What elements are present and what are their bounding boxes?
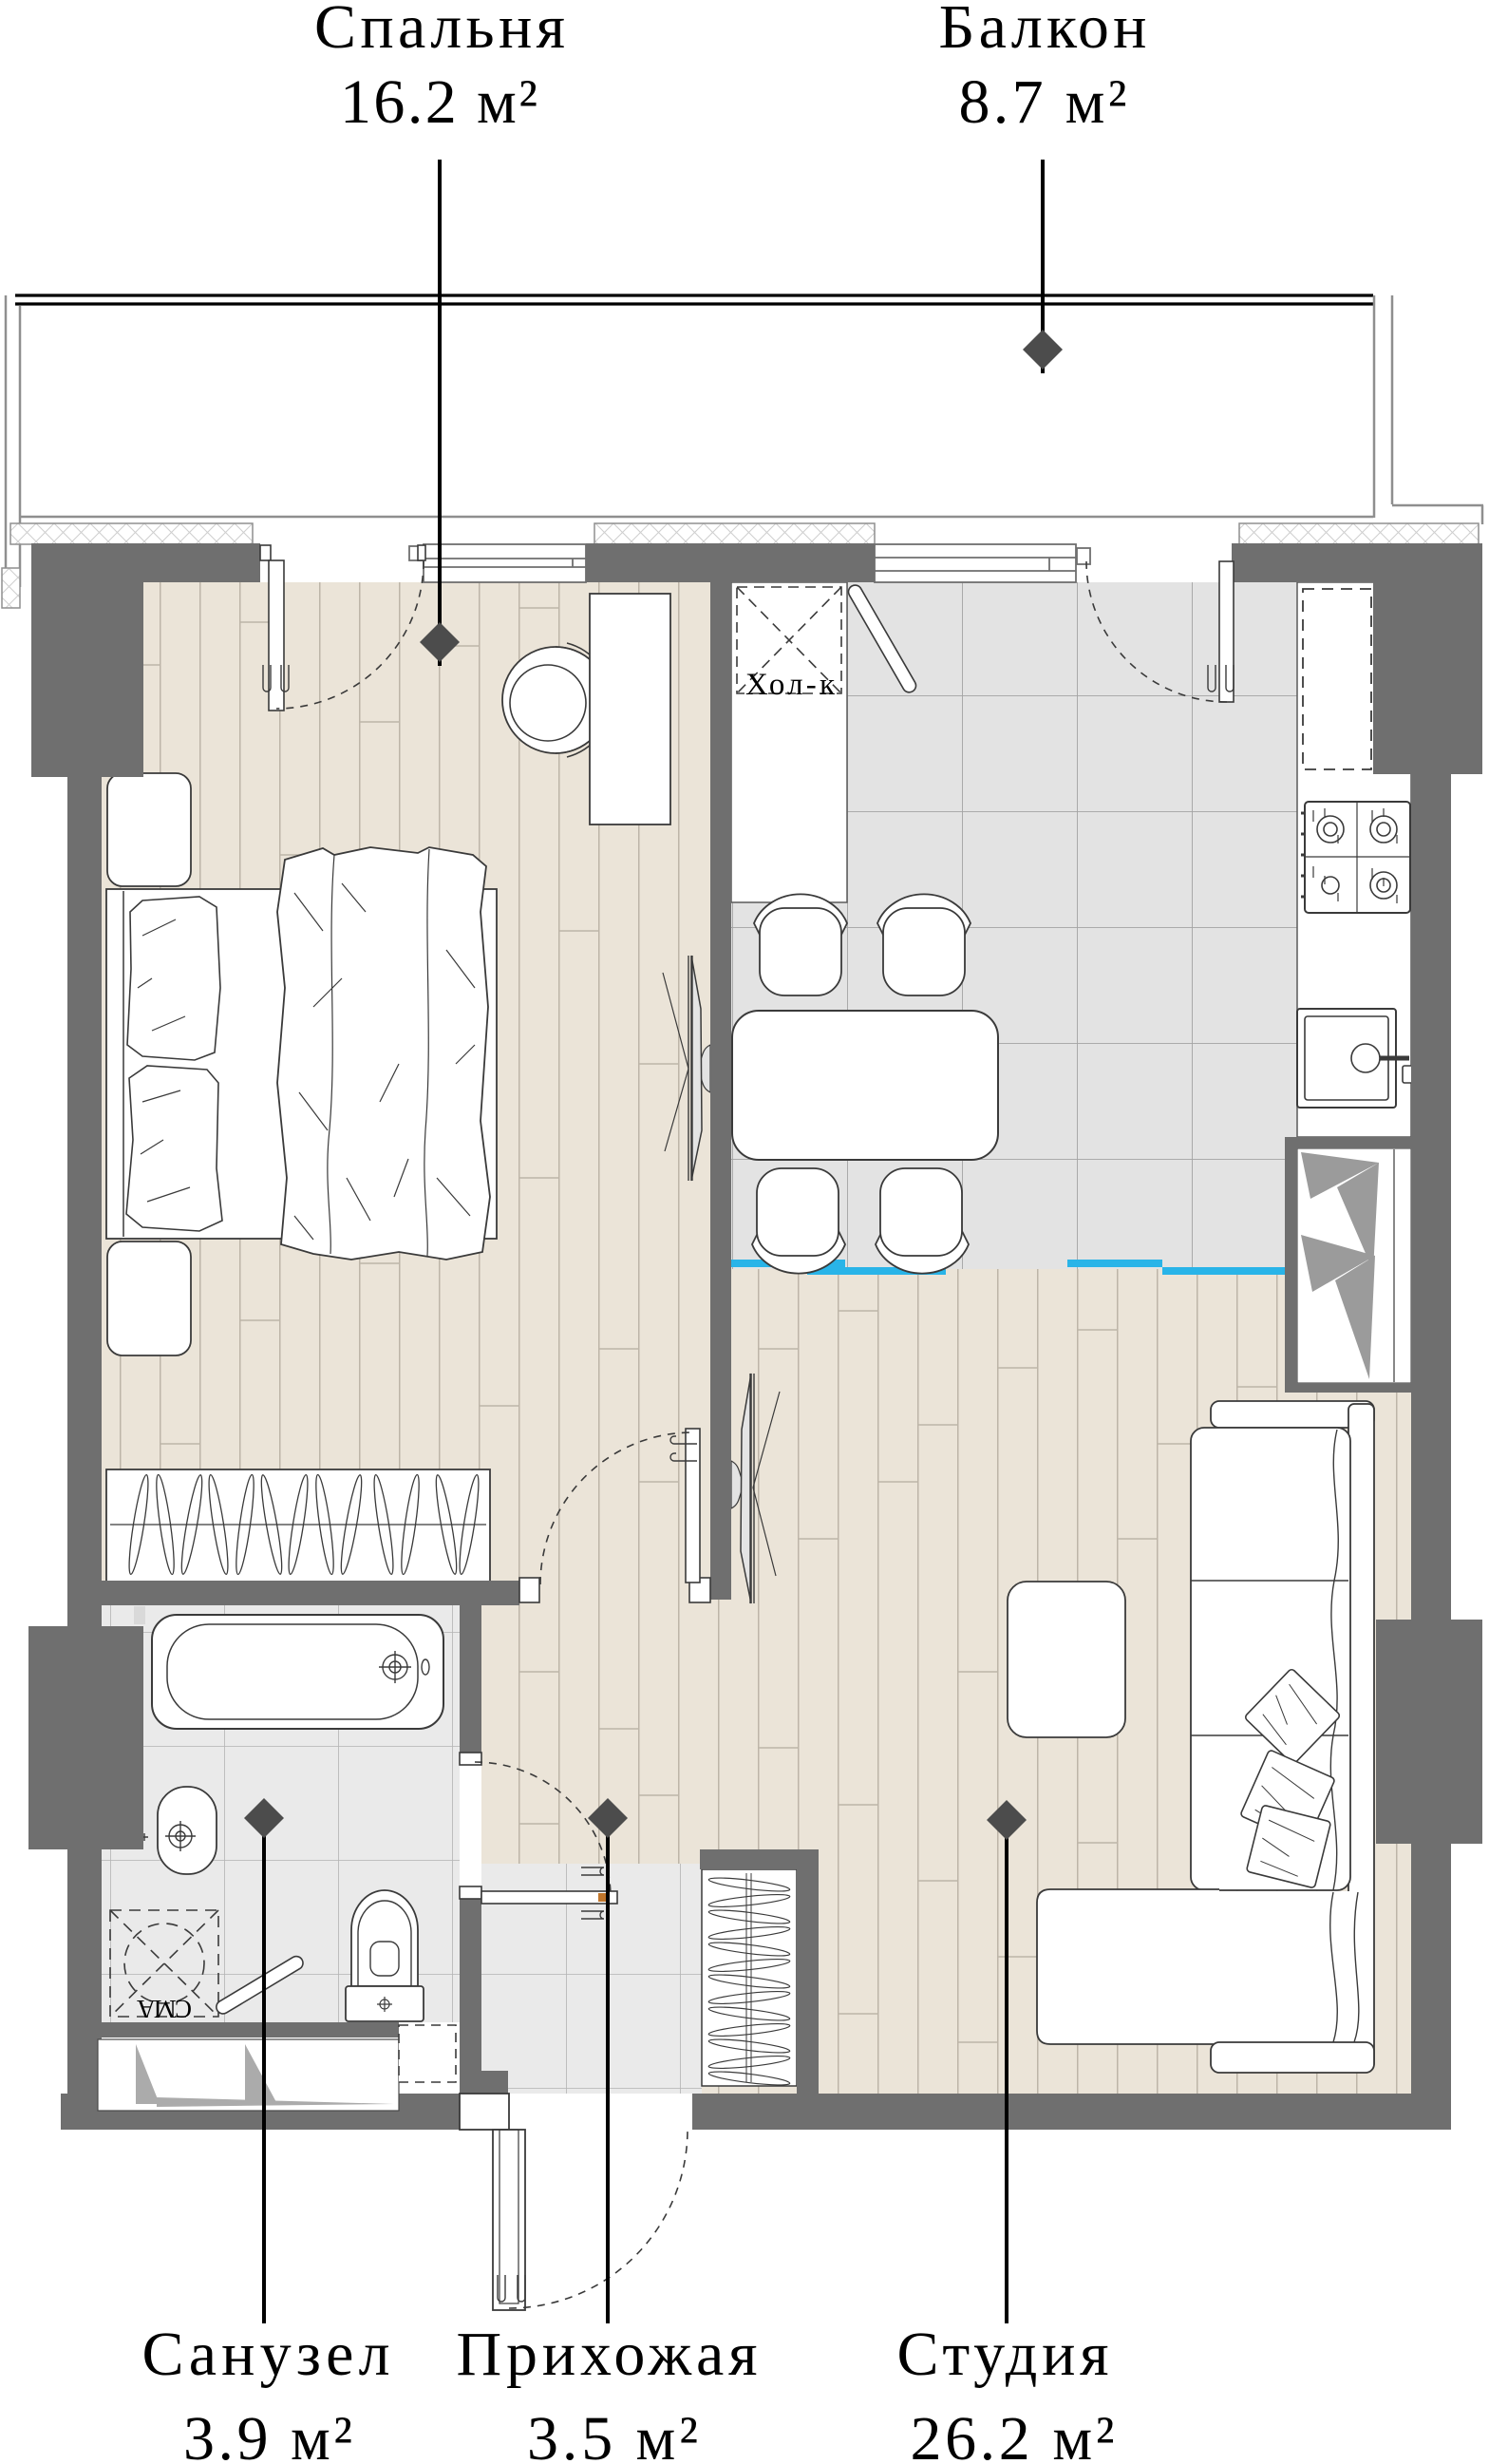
svg-text:26.2 м²: 26.2 м² xyxy=(911,2404,1115,2464)
svg-text:Прихожая: Прихожая xyxy=(457,2320,758,2389)
svg-text:3.5 м²: 3.5 м² xyxy=(527,2404,698,2464)
svg-text:16.2 м²: 16.2 м² xyxy=(340,67,537,137)
svg-text:3.9 м²: 3.9 м² xyxy=(183,2404,352,2464)
svg-text:8.7 м²: 8.7 м² xyxy=(959,67,1127,137)
svg-text:Спальня: Спальня xyxy=(314,0,565,62)
svg-text:СМА: СМА xyxy=(137,1995,193,2023)
svg-text:Хол-к: Хол-к xyxy=(745,668,836,702)
svg-text:Санузел: Санузел xyxy=(142,2320,390,2389)
